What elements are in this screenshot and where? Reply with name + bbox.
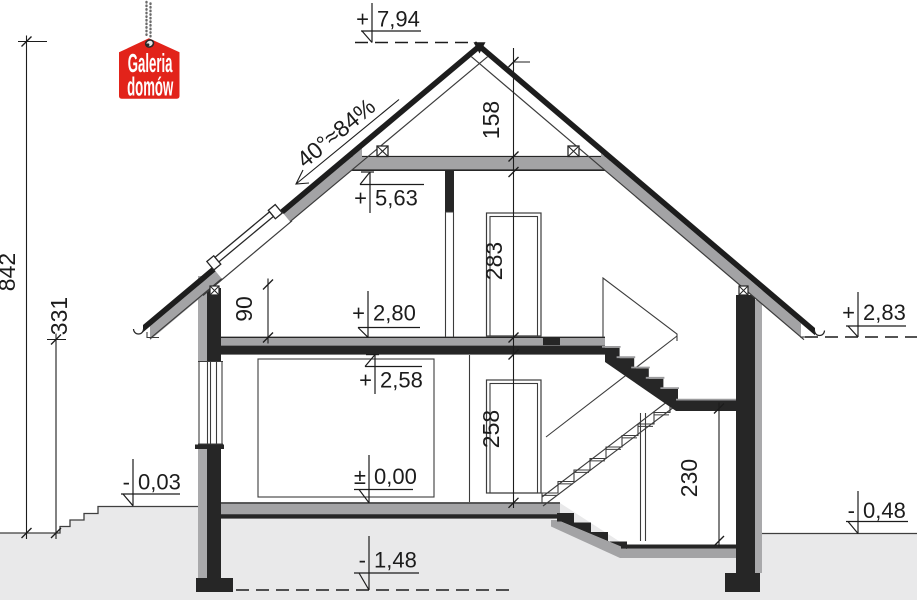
svg-text:-: - bbox=[848, 498, 855, 523]
svg-text:0,48: 0,48 bbox=[863, 498, 906, 523]
svg-text:+: + bbox=[352, 301, 365, 326]
svg-text:258: 258 bbox=[478, 410, 504, 448]
svg-text:2,80: 2,80 bbox=[373, 301, 416, 326]
svg-text:7,94: 7,94 bbox=[377, 7, 420, 32]
svg-text:-: - bbox=[359, 548, 366, 573]
svg-text:1,48: 1,48 bbox=[374, 548, 417, 573]
svg-text:5,63: 5,63 bbox=[375, 186, 418, 211]
svg-text:283: 283 bbox=[481, 242, 507, 280]
svg-text:±: ± bbox=[354, 464, 366, 489]
svg-text:0,00: 0,00 bbox=[374, 464, 417, 489]
svg-text:0,03: 0,03 bbox=[138, 470, 181, 495]
svg-text:+: + bbox=[354, 186, 367, 211]
svg-text:+: + bbox=[356, 7, 369, 32]
svg-text:90: 90 bbox=[231, 296, 257, 322]
svg-text:2,83: 2,83 bbox=[863, 300, 906, 325]
svg-text:331: 331 bbox=[46, 297, 72, 335]
svg-text:158: 158 bbox=[478, 101, 504, 139]
svg-text:+: + bbox=[359, 368, 372, 393]
svg-text:domów: domów bbox=[127, 74, 173, 102]
svg-text:-: - bbox=[123, 470, 130, 495]
svg-text:842: 842 bbox=[0, 253, 20, 291]
svg-text:2,58: 2,58 bbox=[380, 368, 423, 393]
svg-text:+: + bbox=[842, 300, 855, 325]
svg-text:230: 230 bbox=[676, 459, 702, 497]
